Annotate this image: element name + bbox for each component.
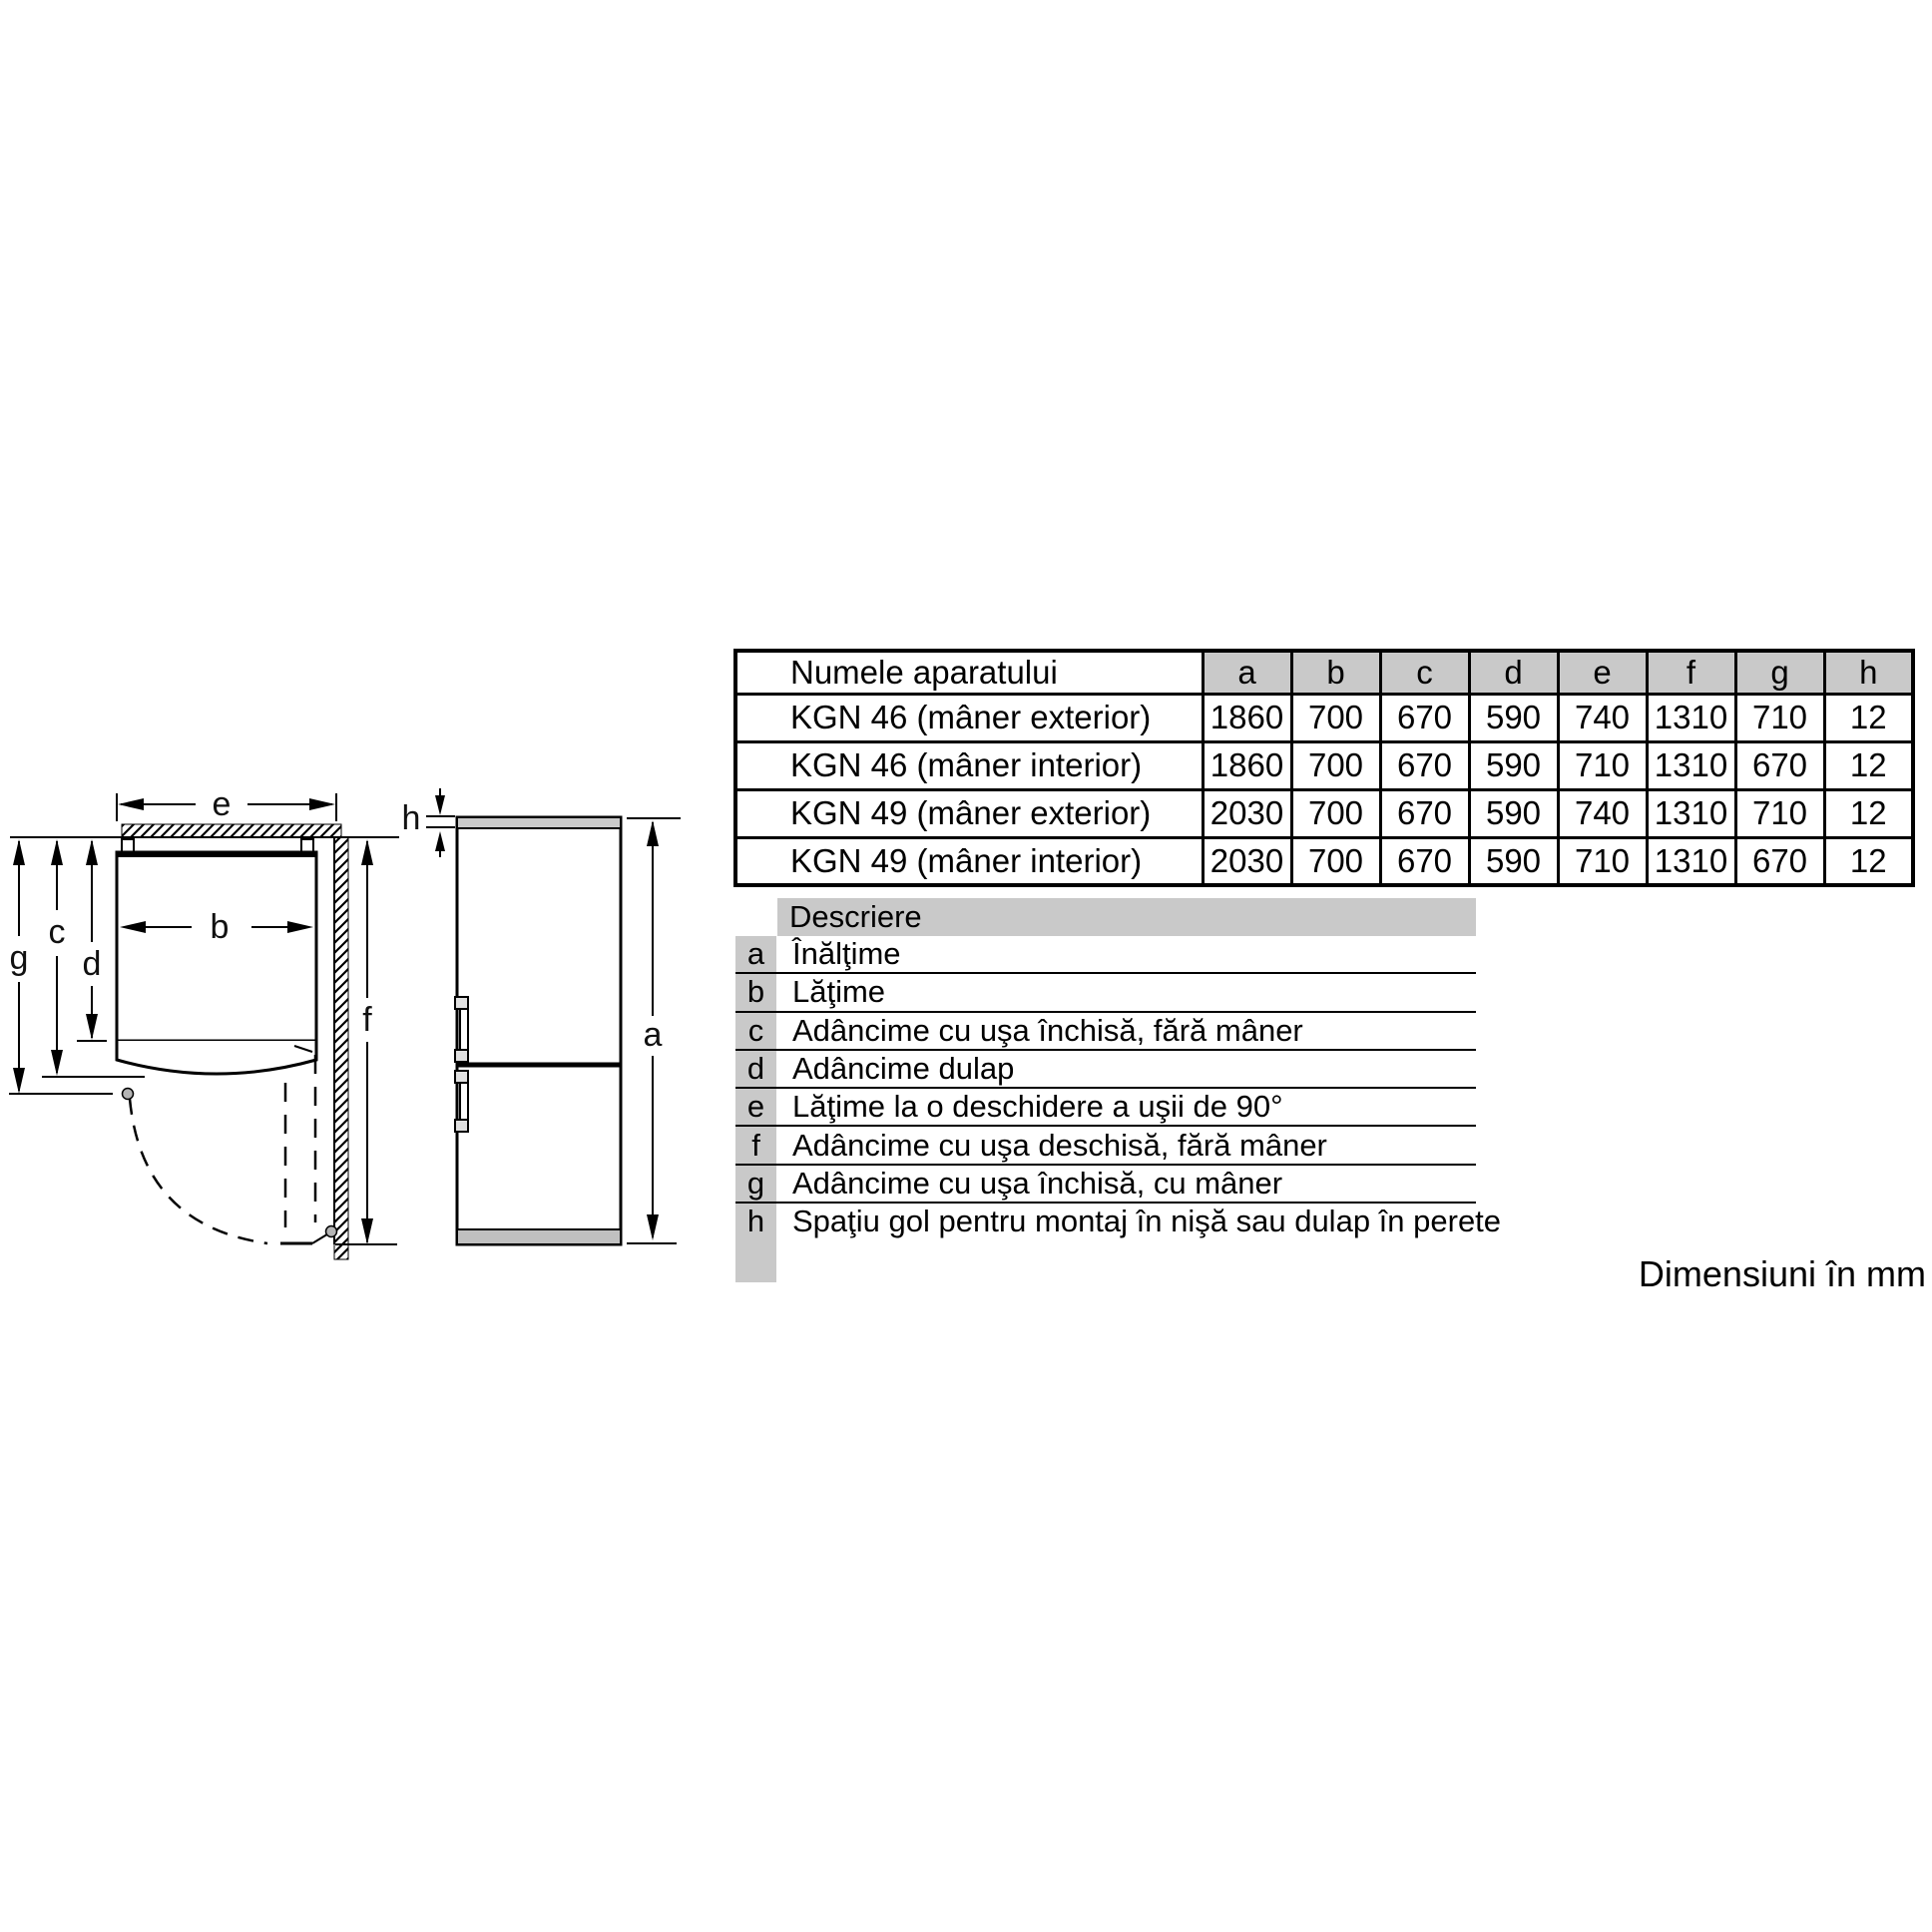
table-cell: 590 (1469, 837, 1558, 885)
table-header-a: a (1203, 651, 1291, 694)
table-row-name: KGN 49 (mâner interior) (735, 837, 1203, 885)
cabinet-top-view (117, 852, 316, 1041)
table-row: KGN 46 (mâner exterior) 1860 700 670 590… (735, 694, 1913, 741)
table-cell: 710 (1735, 789, 1824, 837)
table-cell: 1310 (1647, 694, 1735, 741)
handle-closed-pivot (123, 1089, 134, 1100)
description-text: Adâncime cu uşa deschisă, fără mâner (792, 1128, 1327, 1164)
label-b: b (211, 908, 230, 946)
table-cell: 710 (1735, 694, 1824, 741)
table-cell: 700 (1291, 837, 1380, 885)
description-text: Adâncime dulap (792, 1051, 1014, 1087)
description-row: g Adâncime cu uşa închisă, cu mâner (735, 1166, 1476, 1204)
table-cell: 590 (1469, 694, 1558, 741)
table-header-h: h (1824, 651, 1913, 694)
wall-hatch-top (122, 824, 341, 837)
description-header: Descriere (777, 898, 1476, 936)
table-cell: 670 (1380, 694, 1469, 741)
side-view: h a (402, 788, 681, 1244)
table-cell: 2030 (1203, 837, 1291, 885)
table-header-row: Numele aparatului a b c d e f g h (735, 651, 1913, 694)
label-f: f (362, 1001, 372, 1039)
wall-hatch-side (334, 837, 348, 1259)
fridge-plinth (457, 1229, 621, 1244)
table-row: KGN 49 (mâner interior) 2030 700 670 590… (735, 837, 1913, 885)
table-header-d: d (1469, 651, 1558, 694)
hinge-right (301, 839, 313, 852)
table-cell: 670 (1380, 789, 1469, 837)
description-row: c Adâncime cu uşa închisă, fără mâner (735, 1013, 1476, 1051)
dim-h: h (402, 788, 455, 857)
door-swing-arc (130, 1099, 267, 1243)
table-cell: 2030 (1203, 789, 1291, 837)
description-key: g (735, 1166, 776, 1202)
description-key: h (735, 1204, 776, 1239)
description-row: h Spaţiu gol pentru montaj în nişă sau d… (735, 1204, 1476, 1239)
table-row-name: KGN 46 (mâner interior) (735, 741, 1203, 789)
description-text: Înălţime (792, 936, 901, 972)
description-key: b (735, 974, 776, 1010)
table-cell: 12 (1824, 741, 1913, 789)
table-cell: 1310 (1647, 837, 1735, 885)
fridge-body (457, 817, 621, 1244)
table-cell: 1310 (1647, 789, 1735, 837)
label-h: h (402, 799, 421, 837)
table-row: KGN 46 (mâner interior) 1860 700 670 590… (735, 741, 1913, 789)
table-cell: 670 (1380, 741, 1469, 789)
table-cell: 670 (1735, 837, 1824, 885)
description-text: Lăţime la o deschidere a uşii de 90° (792, 1089, 1282, 1125)
table-row: KGN 49 (mâner exterior) 2030 700 670 590… (735, 789, 1913, 837)
table-header-f: f (1647, 651, 1735, 694)
dim-a: a (627, 818, 681, 1243)
table-cell: 1860 (1203, 694, 1291, 741)
label-a: a (644, 1016, 663, 1054)
table-cell: 700 (1291, 694, 1380, 741)
hinge-left (122, 839, 134, 852)
table-row-name: KGN 46 (mâner exterior) (735, 694, 1203, 741)
fridge-top-band (457, 817, 621, 828)
description-key: e (735, 1089, 776, 1125)
table-cell: 710 (1558, 837, 1647, 885)
description-row: f Adâncime cu uşa deschisă, fără mâner (735, 1127, 1476, 1165)
table-row-name: KGN 49 (mâner exterior) (735, 789, 1203, 837)
label-c: c (49, 913, 66, 951)
label-e: e (213, 785, 232, 823)
page: e b g (0, 0, 1932, 1932)
table-cell: 12 (1824, 789, 1913, 837)
table-cell: 1860 (1203, 741, 1291, 789)
description-text: Spaţiu gol pentru montaj în nişă sau dul… (792, 1204, 1501, 1239)
description-text: Adâncime cu uşa închisă, fără mâner (792, 1013, 1303, 1049)
description-list: a Înălţime b Lăţime c Adâncime cu uşa în… (735, 936, 1476, 1239)
dimension-diagram: e b g (0, 758, 699, 1317)
table-cell: 590 (1469, 789, 1558, 837)
label-d: d (83, 945, 102, 983)
table-header-g: g (1735, 651, 1824, 694)
handle-open-pivot (326, 1226, 337, 1237)
units-note: Dimensiuni în mm (1437, 1253, 1926, 1295)
description-row: a Înălţime (735, 936, 1476, 974)
description-row: d Adâncime dulap (735, 1051, 1476, 1089)
description-text: Lăţime (792, 974, 885, 1010)
table-cell: 590 (1469, 741, 1558, 789)
table-header-name: Numele aparatului (735, 651, 1203, 694)
description-row: b Lăţime (735, 974, 1476, 1012)
description-key: f (735, 1128, 776, 1164)
table-cell: 670 (1735, 741, 1824, 789)
table-header-c: c (1380, 651, 1469, 694)
dimensions-table: Numele aparatului a b c d e f g h KGN 46… (733, 649, 1915, 887)
label-g: g (10, 939, 29, 977)
table-cell: 740 (1558, 789, 1647, 837)
door-closed (117, 1041, 316, 1074)
table-cell: 710 (1558, 741, 1647, 789)
table-cell: 700 (1291, 789, 1380, 837)
table-cell: 12 (1824, 694, 1913, 741)
description-key: c (735, 1013, 776, 1049)
top-view: e b g (9, 785, 399, 1259)
table-cell: 670 (1380, 837, 1469, 885)
description-text: Adâncime cu uşa închisă, cu mâner (792, 1166, 1282, 1202)
dim-e: e (117, 785, 336, 823)
table-cell: 1310 (1647, 741, 1735, 789)
table-cell: 12 (1824, 837, 1913, 885)
description-key: a (735, 936, 776, 972)
table-header-e: e (1558, 651, 1647, 694)
dim-d: d (77, 839, 107, 1041)
table-header-b: b (1291, 651, 1380, 694)
description-row: e Lăţime la o deschidere a uşii de 90° (735, 1089, 1476, 1127)
description-key: d (735, 1051, 776, 1087)
table-cell: 740 (1558, 694, 1647, 741)
table-cell: 700 (1291, 741, 1380, 789)
